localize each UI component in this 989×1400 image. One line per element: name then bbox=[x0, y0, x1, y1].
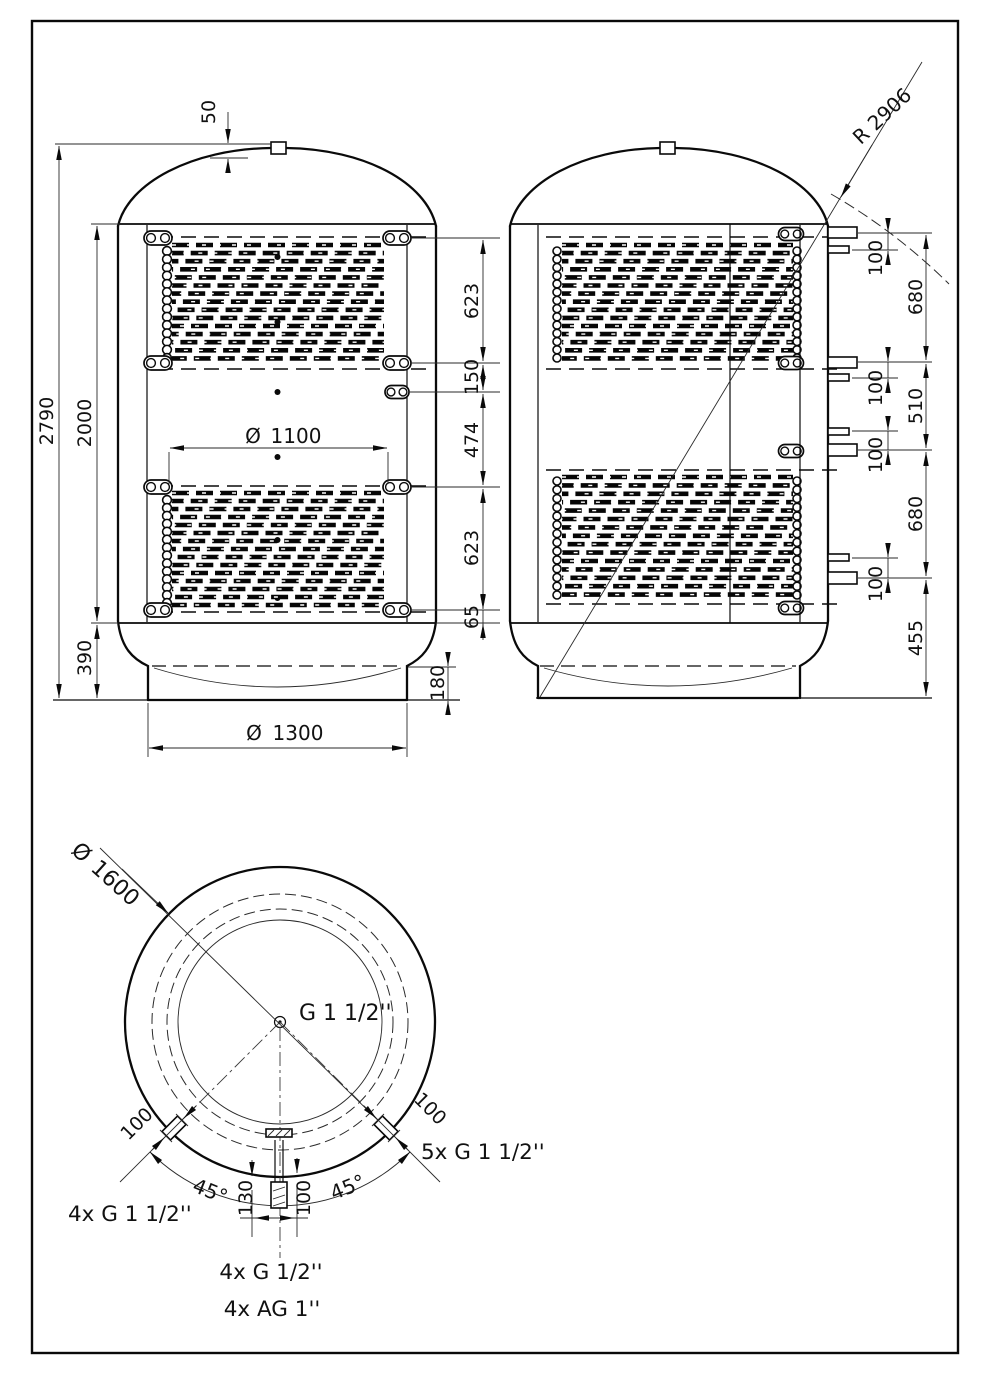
dim-nozzle-gap-4: 100 bbox=[865, 566, 887, 602]
label-right-connections: 5x G 1 1/2'' bbox=[421, 1140, 545, 1165]
dim-total-height: 2790 bbox=[36, 397, 58, 445]
dim-span-base: 455 bbox=[905, 620, 927, 656]
dim-nozzle-gap-3: 100 bbox=[865, 437, 887, 473]
top-flange bbox=[660, 142, 675, 154]
side-view: R 2906 100 100 100 100 bbox=[510, 62, 949, 698]
technical-drawing: 50 2790 2000 390 623 150 474 623 65 180 … bbox=[0, 0, 989, 1400]
dim-nozzle-gap-2: 100 bbox=[865, 370, 887, 406]
dim-base-diameter: 1300 bbox=[273, 721, 324, 745]
dim-outer-diameter: Ø1600 bbox=[66, 838, 144, 912]
dim-offset-65: 65 bbox=[461, 605, 483, 629]
dim-nozzle-len-right: 100 bbox=[409, 1088, 450, 1129]
dim-flange-height: 50 bbox=[198, 100, 220, 124]
dim-base-height: 390 bbox=[74, 640, 96, 676]
bottom-drain-pipe bbox=[266, 1129, 292, 1208]
dia-symbol-base: Ø bbox=[246, 721, 262, 745]
dim-offset-130: 130 bbox=[235, 1180, 257, 1216]
label-left-connections: 4x G 1 1/2'' bbox=[68, 1202, 192, 1227]
label-bottom-connections-2: 4x AG 1'' bbox=[224, 1297, 321, 1322]
dim-nozzle-gap-1: 100 bbox=[865, 240, 887, 276]
dim-crown-radius: R 2906 bbox=[848, 83, 916, 149]
dim-coil-lower: 623 bbox=[461, 530, 483, 566]
dim-skirt-height: 180 bbox=[427, 665, 449, 701]
dim-shell-height: 2000 bbox=[74, 399, 96, 447]
dim-coil-diameter: 1100 bbox=[271, 424, 322, 448]
bottom-view: Ø1600 100 100 45° 45° bbox=[66, 838, 545, 1322]
dim-offset-100: 100 bbox=[293, 1180, 315, 1216]
dim-gap-474: 474 bbox=[461, 422, 483, 458]
dim-span-lower: 680 bbox=[905, 496, 927, 532]
top-flange bbox=[271, 142, 286, 154]
label-center-connection: G 1 1/2'' bbox=[299, 1001, 392, 1026]
dim-span-upper: 680 bbox=[905, 279, 927, 315]
drawing-page: 50 2790 2000 390 623 150 474 623 65 180 … bbox=[0, 0, 989, 1400]
front-view: 50 2790 2000 390 623 150 474 623 65 180 … bbox=[36, 100, 840, 757]
side-nozzles bbox=[828, 227, 857, 584]
dia-symbol-coil: Ø bbox=[245, 424, 261, 448]
label-bottom-connections-1: 4x G 1/2'' bbox=[219, 1260, 322, 1285]
dim-right-angle: 45° bbox=[327, 1169, 369, 1205]
dim-left-angle: 45° bbox=[189, 1173, 231, 1209]
dim-coil-upper: 623 bbox=[461, 283, 483, 319]
dim-gap-150: 150 bbox=[461, 359, 483, 395]
dim-span-middle: 510 bbox=[905, 388, 927, 424]
